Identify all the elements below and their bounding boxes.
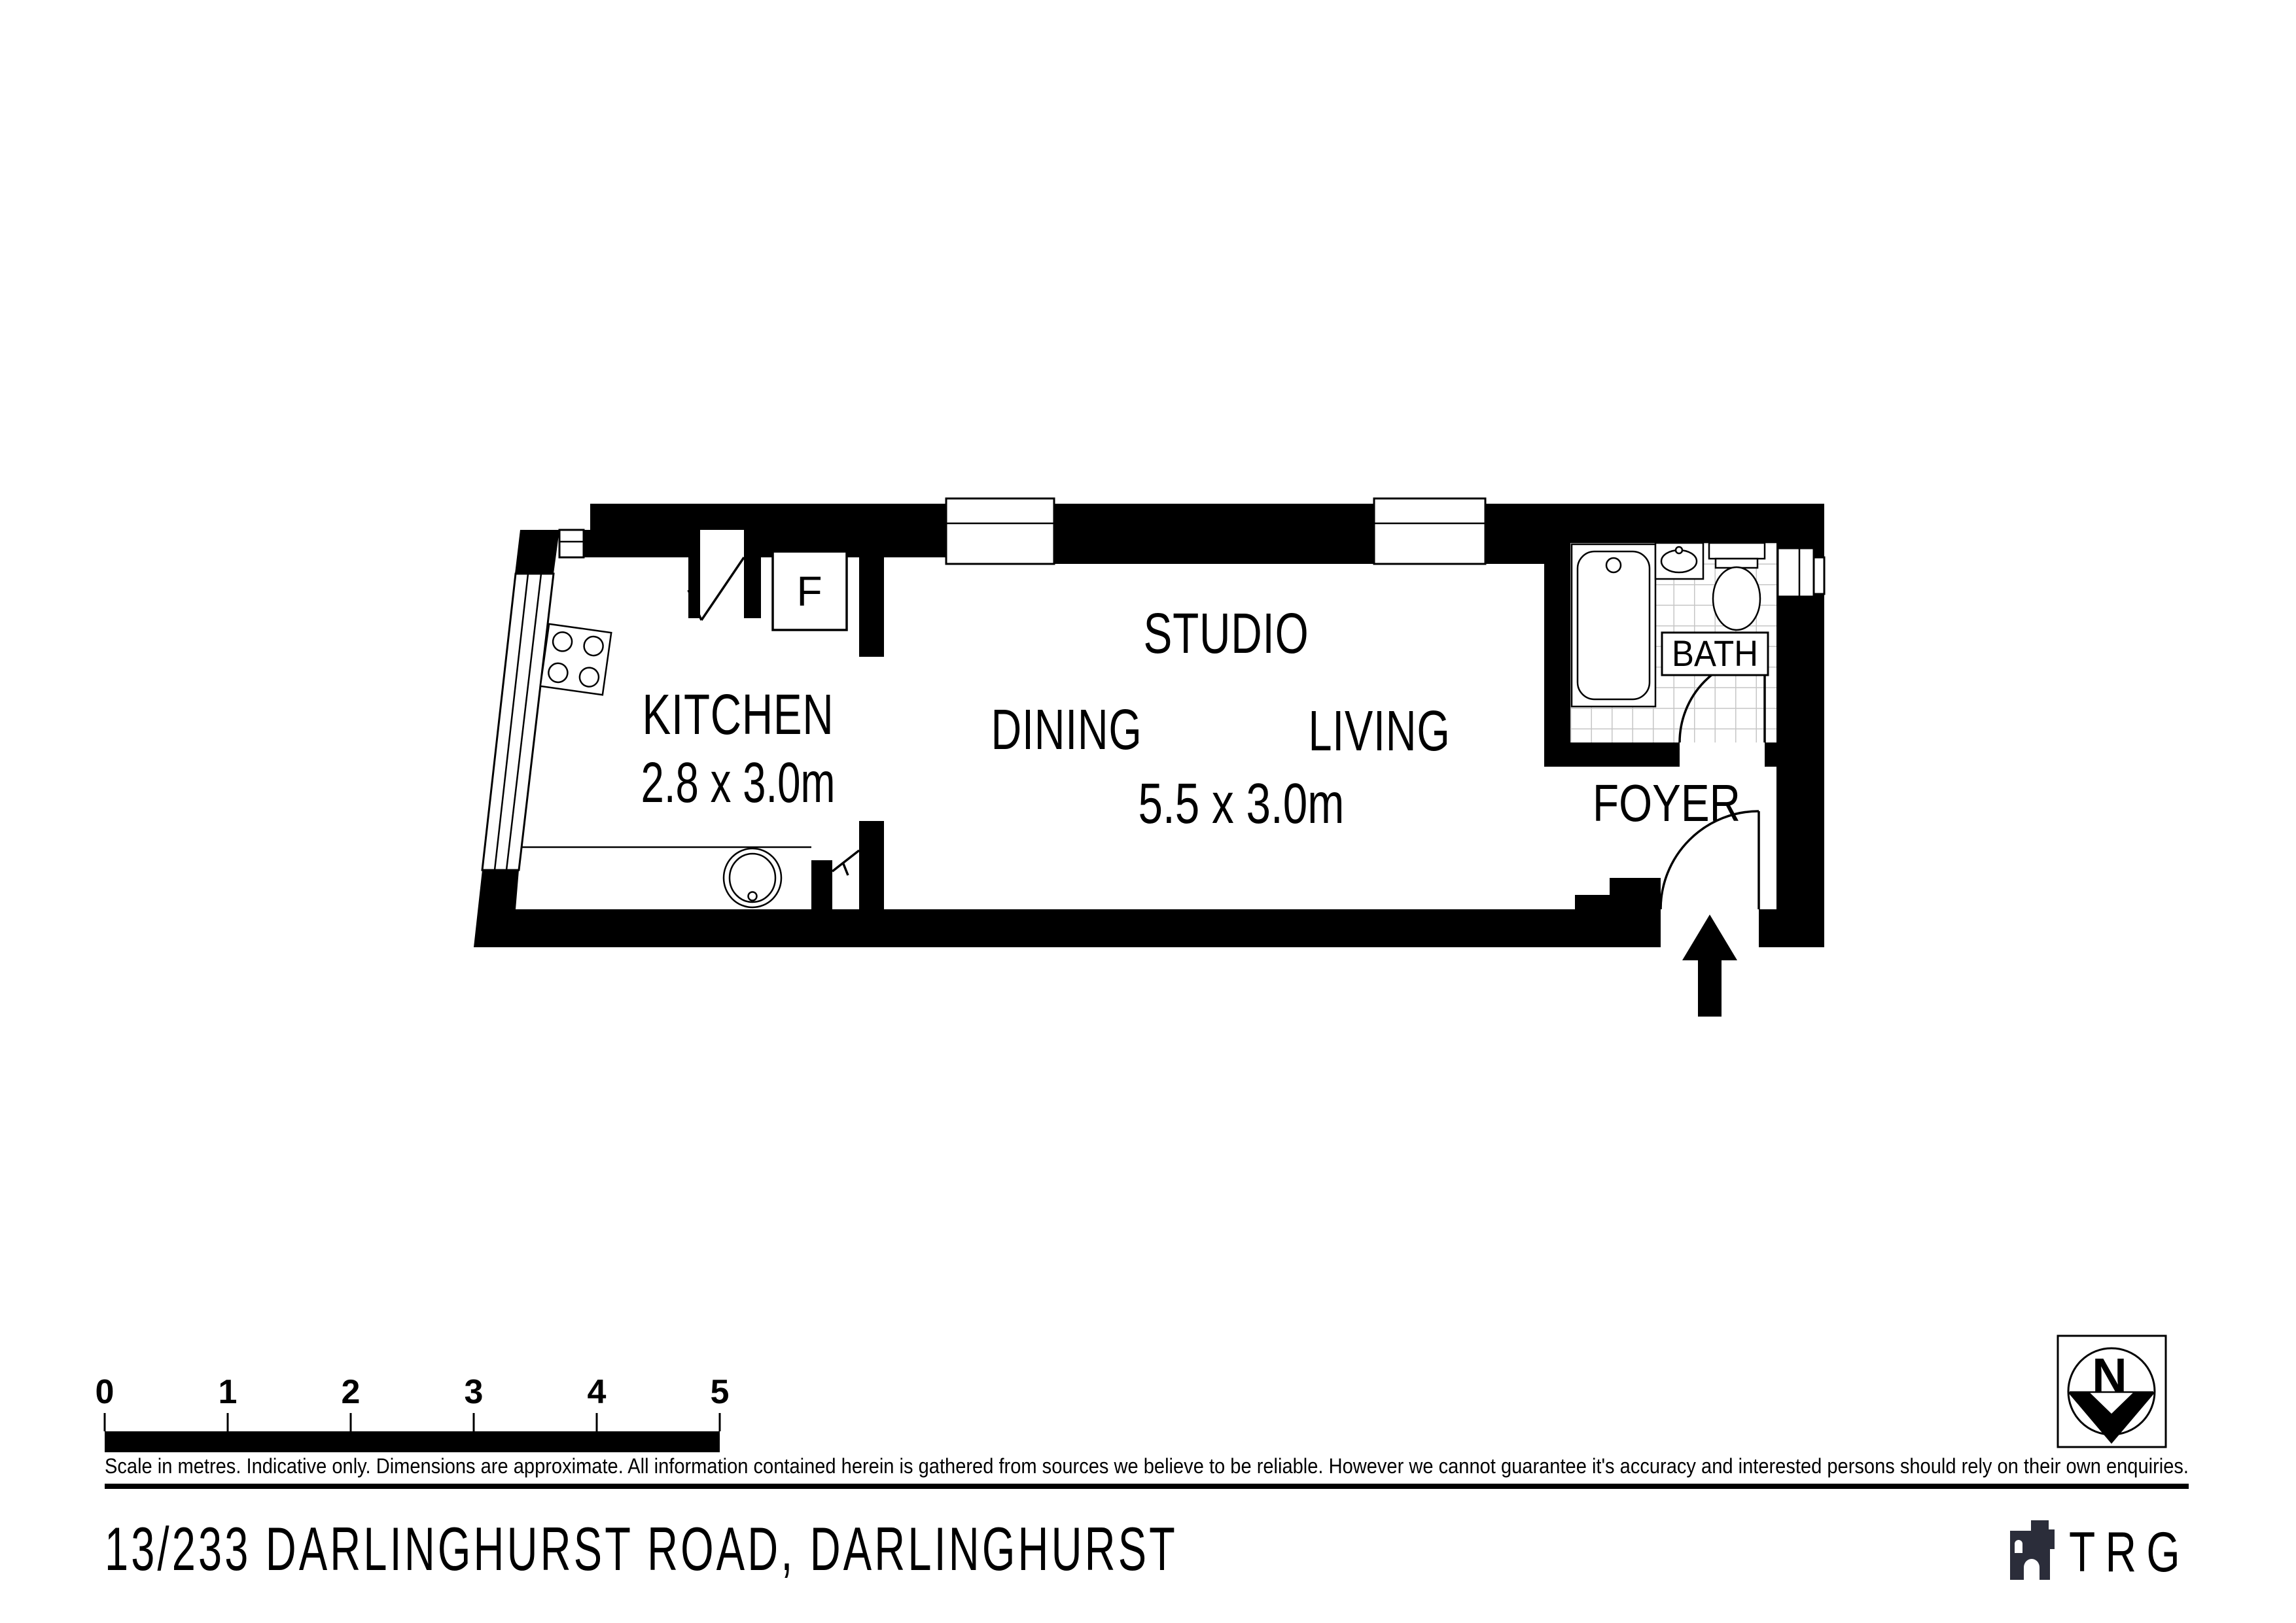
- floorplan-canvas: BATH F: [0, 0, 2296, 1623]
- living-label: LIVING: [1309, 699, 1451, 763]
- kitchen-dimensions: 2.8 x 3.0m: [641, 751, 836, 814]
- brand-text: TRG: [2069, 1521, 2190, 1584]
- window-icon: [1374, 498, 1485, 564]
- bath-foyer-wall: [1544, 742, 1680, 767]
- top-wall-studio-left: [1054, 504, 1374, 564]
- bath-foyer-wall-stub: [1765, 742, 1776, 767]
- scale-tick-label: 5: [711, 1373, 730, 1411]
- scale-tick-label: 1: [219, 1373, 238, 1411]
- sink-icon: [1655, 543, 1703, 579]
- fridge-nook-wall: [744, 530, 761, 618]
- scale-bar: 0 1 2 3 4 5 Scale in metres. Indicative …: [96, 1373, 2189, 1478]
- kitchen-label: KITCHEN: [643, 683, 834, 746]
- left-wall-bottom-block: [474, 870, 590, 947]
- scale-tick-label: 0: [96, 1373, 115, 1411]
- scale-tick-label: 3: [465, 1373, 484, 1411]
- bathroom: BATH: [1570, 543, 1776, 742]
- foyer-label: FOYER: [1593, 774, 1740, 832]
- north-compass-icon: N: [2058, 1336, 2166, 1447]
- entry: [1661, 811, 1759, 1017]
- kitchen-counter-stub: [811, 860, 832, 909]
- window-icon: [559, 530, 584, 557]
- scale-tick-label: 2: [342, 1373, 361, 1411]
- foyer-step-block: [1575, 878, 1661, 909]
- slanted-window-strip: [482, 574, 554, 870]
- scale-ticks: [105, 1413, 720, 1431]
- top-wall-kitchen-upper: [590, 504, 946, 530]
- kitchen-lower-door-icon: [832, 850, 859, 875]
- address-text: 13/233 DARLINGHURST ROAD, DARLINGHURST: [105, 1514, 1178, 1583]
- stove-icon: [540, 624, 611, 695]
- brand-logo: TRG: [2010, 1520, 2190, 1584]
- toilet-icon: [1709, 543, 1765, 630]
- studio-bath-wall: [1544, 543, 1570, 742]
- brand-building-icon: [2010, 1520, 2055, 1580]
- studio-label: STUDIO: [1144, 602, 1309, 665]
- bathtub-icon: [1572, 544, 1655, 707]
- footer-rule: [105, 1484, 2189, 1489]
- top-wall-studio-right: [1485, 504, 1546, 564]
- footer: 13/233 DARLINGHURST ROAD, DARLINGHURST T…: [105, 1484, 2190, 1584]
- bottom-wall-left: [520, 909, 1661, 947]
- dining-label: DINING: [991, 698, 1142, 761]
- north-label: N: [2092, 1348, 2127, 1403]
- studio-dimensions: 5.5 x 3.0m: [1139, 772, 1345, 835]
- floorplan-page: BATH F: [0, 0, 2296, 1623]
- kitchen-studio-wall-upper: [859, 530, 884, 657]
- window-icon: [946, 498, 1054, 564]
- kitchen-studio-wall-lower: [859, 821, 884, 909]
- bath-label: BATH: [1672, 633, 1758, 674]
- scale-tick-label: 4: [588, 1373, 607, 1411]
- entry-arrow-icon: [1682, 915, 1737, 1017]
- kitchen-sink-icon: [724, 848, 781, 907]
- fridge-label: F: [796, 568, 822, 615]
- fridge-icon: F: [773, 551, 847, 630]
- top-wall-kitchen-left: [584, 530, 688, 557]
- scale-bar-rect: [105, 1431, 720, 1452]
- bottom-wall-right: [1759, 909, 1824, 947]
- scale-disclaimer: Scale in metres. Indicative only. Dimens…: [105, 1454, 2189, 1478]
- left-wall-top-block: [515, 530, 559, 574]
